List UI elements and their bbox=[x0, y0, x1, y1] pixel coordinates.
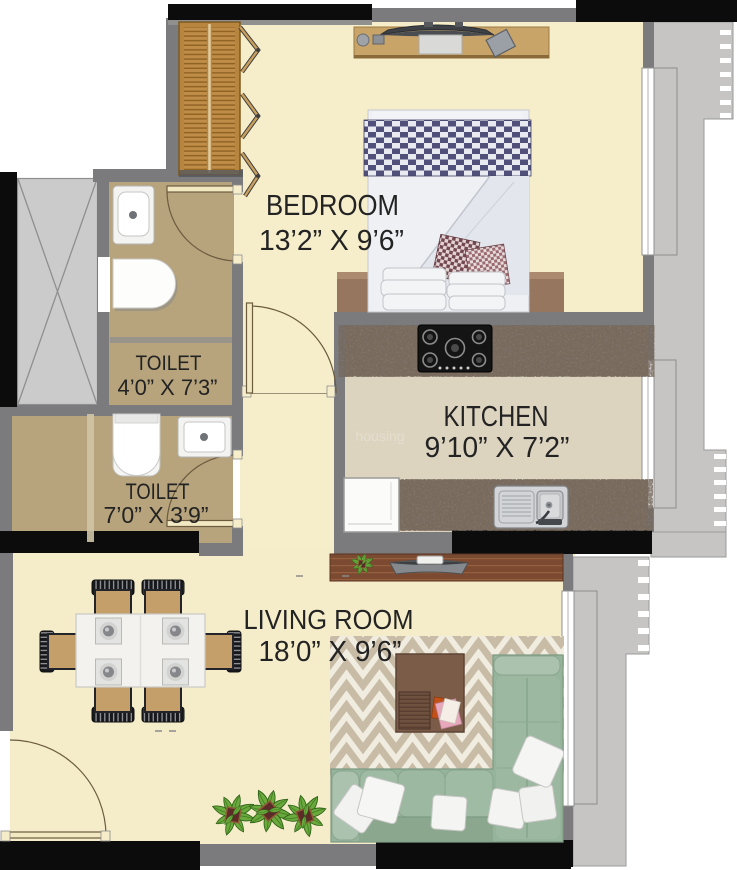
svg-text:7’0” X 3’9”: 7’0” X 3’9” bbox=[104, 502, 209, 528]
svg-text:housing: housing bbox=[355, 428, 404, 444]
svg-text:LIVING ROOM: LIVING ROOM bbox=[244, 604, 414, 635]
svg-text:TOILET: TOILET bbox=[126, 479, 190, 504]
svg-text:9’10” X 7’2”: 9’10” X 7’2” bbox=[425, 432, 570, 464]
svg-text:TOILET: TOILET bbox=[136, 352, 202, 375]
svg-text:KITCHEN: KITCHEN bbox=[444, 401, 549, 433]
svg-text:BEDROOM: BEDROOM bbox=[266, 190, 399, 222]
svg-text:4’0” X 7’3”: 4’0” X 7’3” bbox=[118, 375, 218, 400]
svg-text:18’0” X 9’6”: 18’0” X 9’6” bbox=[259, 636, 402, 668]
svg-text:13’2” X 9’6”: 13’2” X 9’6” bbox=[259, 225, 404, 257]
